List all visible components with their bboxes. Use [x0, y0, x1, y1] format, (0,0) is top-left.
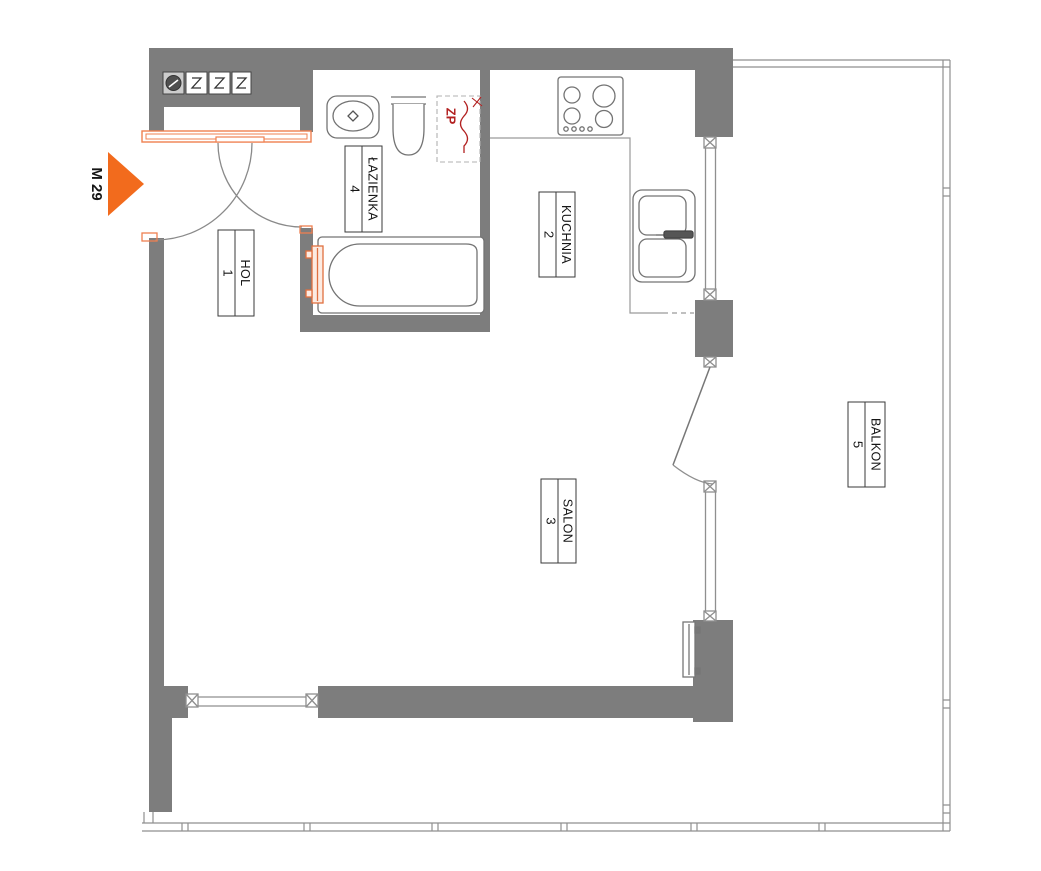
floor-plan-drawing: M 29: [0, 0, 1041, 871]
room-name: SALON: [561, 499, 575, 543]
wall-left-lower: [149, 718, 172, 812]
washbasin-icon: [327, 96, 379, 138]
room-label-balkon: BALKON 5: [848, 402, 885, 487]
room-name: KUCHNIA: [559, 205, 573, 264]
room-number: 4: [348, 185, 363, 192]
entrance-door-assembly: [142, 131, 312, 241]
railing-post-tick: [819, 823, 825, 831]
railing-post-tick: [691, 823, 697, 831]
room-name: HOL: [238, 260, 252, 287]
room-number: 3: [544, 517, 559, 524]
entrance-door-swing-arc: [155, 143, 252, 240]
wall-pilaster-bottom-left: [149, 686, 188, 718]
railing-post-tick: [304, 823, 310, 831]
window-glass: [198, 697, 306, 706]
railing-post-tick: [561, 823, 567, 831]
room-label-kuchnia: KUCHNIA 2: [539, 192, 575, 277]
room-label-lazienka: ŁAZIENKA 4: [345, 146, 382, 232]
bathroom-door-swing-arc: [218, 143, 302, 227]
railing-joint: [943, 700, 950, 708]
room-name: ŁAZIENKA: [366, 157, 380, 221]
unit-label: M 29: [88, 167, 105, 200]
riser-pipe-squiggle: [461, 101, 468, 153]
wall-top: [149, 48, 733, 70]
entrance-niche: [164, 107, 300, 132]
stove-icon: [558, 77, 623, 135]
window-frame-symbol: [186, 694, 318, 707]
riser-shaft: ZP: [437, 96, 482, 162]
kitchen-sink-icon: [633, 190, 695, 282]
railing-post-tick: [182, 823, 188, 831]
room-label-salon: SALON 3: [541, 479, 576, 563]
window-glass: [706, 492, 716, 611]
wall-pillar-top-right: [695, 48, 733, 137]
railing-joint: [943, 188, 950, 196]
railing-post-tick: [432, 823, 438, 831]
unit-marker: M 29: [88, 152, 144, 216]
window-glass: [706, 148, 716, 289]
riser-label: ZP: [444, 108, 459, 125]
toilet-icon: [391, 97, 426, 155]
room-number: 5: [851, 441, 866, 448]
railing-joint: [943, 805, 950, 813]
balcony-door-leaf: [673, 367, 710, 465]
railing-right: [943, 60, 950, 831]
room-number: 1: [221, 269, 236, 276]
wall-pillar-mid-right: [695, 300, 733, 357]
room-number: 2: [542, 231, 557, 238]
entrance-arrow-icon: [108, 152, 144, 216]
window-bottom: [186, 694, 318, 707]
entrance-door-leaf: [216, 137, 264, 142]
bathtub-icon: [318, 237, 484, 313]
sink-faucet: [664, 231, 693, 238]
wall-bottom: [318, 686, 733, 718]
floor-plan-page: M 29: [0, 0, 1041, 871]
railing-bottom: [142, 823, 950, 831]
wall-left: [149, 238, 164, 686]
room-label-hol: HOL 1: [218, 230, 254, 316]
room-name: BALKON: [869, 418, 883, 471]
railing-top: [733, 60, 950, 67]
wall-bathroom-bottom: [300, 315, 490, 332]
railing-left-connector: [144, 812, 153, 823]
wall-boxes: [163, 72, 251, 94]
